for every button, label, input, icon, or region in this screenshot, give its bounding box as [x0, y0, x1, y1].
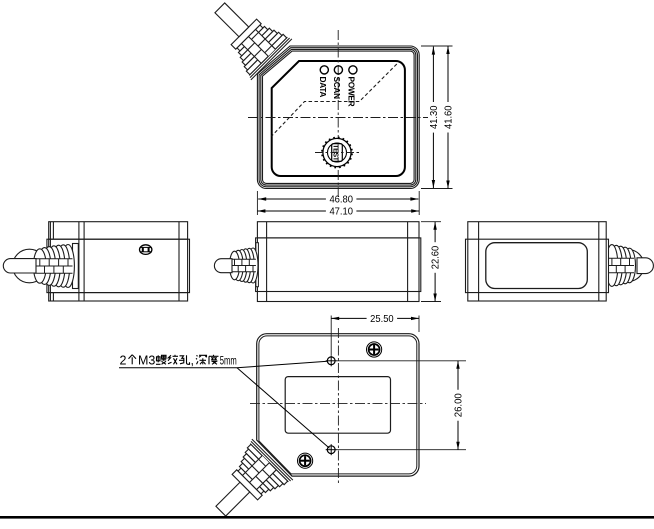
- svg-text:SCAN: SCAN: [332, 77, 342, 100]
- svg-text:41.30: 41.30: [428, 105, 440, 129]
- svg-text:,: ,: [191, 353, 194, 367]
- svg-text:26.00: 26.00: [452, 393, 464, 417]
- svg-text:25.50: 25.50: [370, 313, 394, 325]
- svg-text:2: 2: [120, 353, 127, 367]
- svg-text:5mm: 5mm: [220, 353, 237, 367]
- svg-text:TEST: TEST: [332, 144, 339, 161]
- svg-text:41.60: 41.60: [442, 105, 454, 129]
- svg-text:POWER: POWER: [347, 77, 357, 107]
- svg-text:22.60: 22.60: [430, 246, 442, 270]
- svg-text:47.10: 47.10: [329, 205, 353, 217]
- svg-text:DATA: DATA: [318, 77, 328, 98]
- svg-text:46.80: 46.80: [329, 193, 353, 205]
- svg-text:M3: M3: [138, 353, 155, 367]
